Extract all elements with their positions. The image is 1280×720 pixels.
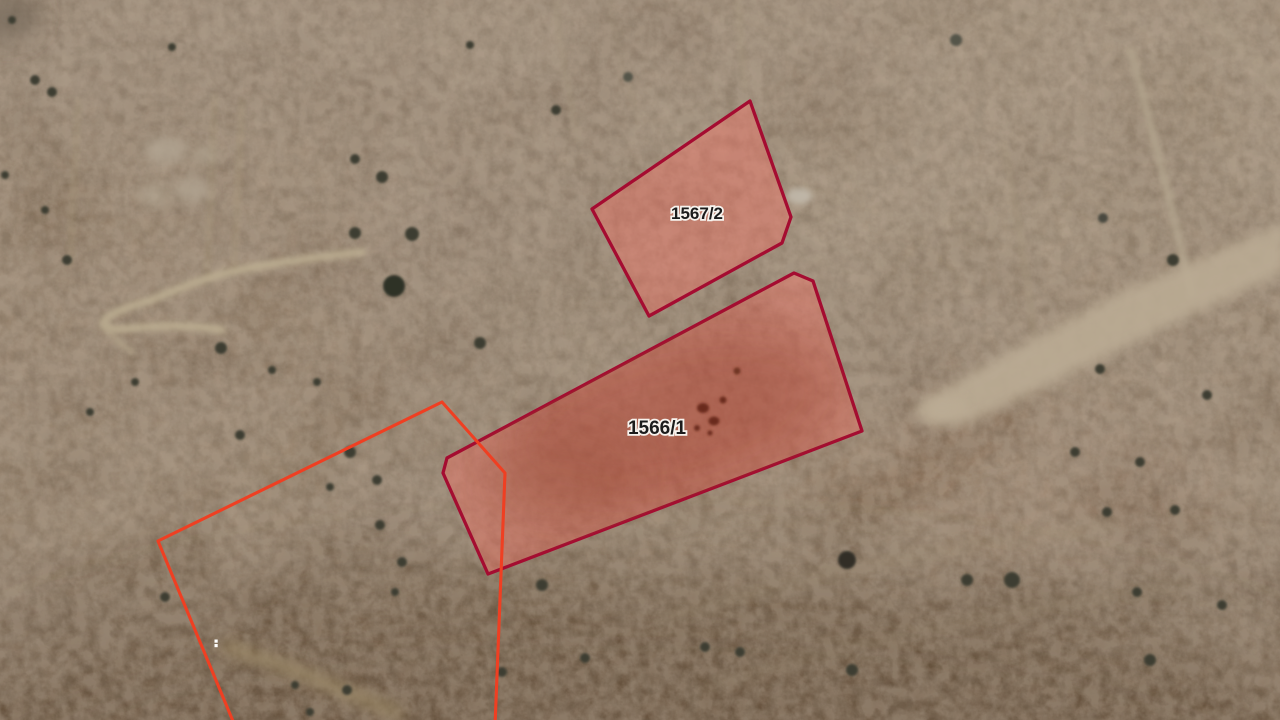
svg-text:1567/2: 1567/2 (671, 204, 723, 223)
svg-text:1566/1: 1566/1 (628, 418, 687, 439)
